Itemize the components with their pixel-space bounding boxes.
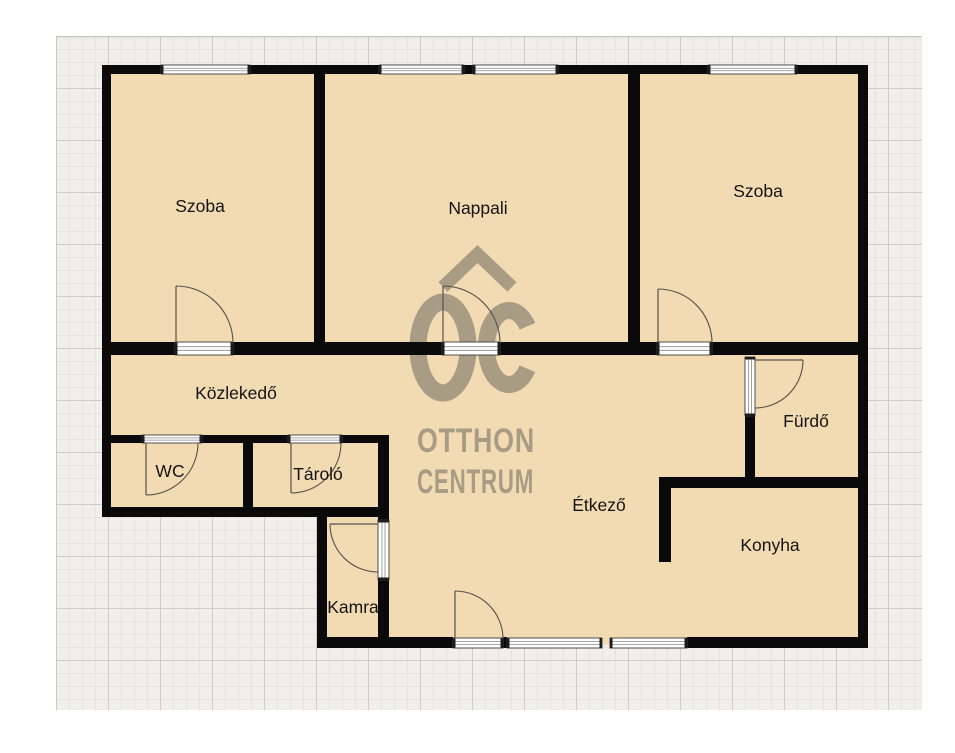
door-sill-jamb: [200, 435, 203, 443]
window-jamb: [462, 65, 465, 74]
window-jamb: [473, 65, 476, 74]
window-jamb: [507, 638, 510, 648]
window: [507, 638, 602, 648]
door-sill-jamb: [657, 342, 660, 355]
window-jamb: [556, 65, 559, 74]
floorplan-svg: OTTHONCENTRUMSzobaNappaliSzobaKözlekedőW…: [0, 0, 955, 753]
door-sill-jamb: [745, 414, 755, 417]
window-jamb: [685, 638, 688, 648]
wall: [250, 65, 379, 74]
door-sill: [288, 435, 342, 443]
door-sill: [442, 342, 500, 355]
window-jamb: [610, 638, 613, 648]
window: [473, 65, 558, 74]
door-sill-jamb: [498, 342, 501, 355]
room-label: Étkező: [572, 495, 626, 515]
door-sill: [745, 357, 755, 416]
window-jamb: [248, 65, 251, 74]
wall: [503, 637, 507, 648]
door-sill-jamb: [442, 342, 445, 355]
wall: [317, 637, 453, 648]
wall: [558, 65, 708, 74]
window-jamb: [379, 65, 382, 74]
wall: [745, 416, 755, 477]
window-jamb: [708, 65, 711, 74]
door-sill-jamb: [453, 638, 456, 648]
room-label: Szoba: [733, 181, 783, 201]
wall: [687, 637, 868, 648]
door-sill: [142, 435, 202, 443]
door-sill: [378, 520, 389, 580]
wall: [314, 74, 325, 342]
wall: [464, 65, 473, 74]
window-jamb: [600, 638, 603, 648]
door-sill-jamb: [175, 342, 178, 355]
door-sill-jamb: [745, 357, 755, 360]
watermark-text-line2: CENTRUM: [417, 463, 534, 501]
room-label: Konyha: [740, 535, 800, 555]
door-sill-jamb: [142, 435, 145, 443]
wall: [202, 435, 288, 443]
door-sill-jamb: [378, 520, 389, 523]
wall: [317, 507, 327, 648]
window: [610, 638, 687, 648]
door-sill-jamb: [378, 578, 389, 581]
wall: [233, 342, 442, 355]
door-sill: [175, 342, 233, 355]
wall: [243, 443, 253, 517]
wall: [111, 342, 175, 355]
floor-plan-page: OTTHONCENTRUMSzobaNappaliSzobaKözlekedőW…: [0, 0, 955, 753]
door-sill-jamb: [231, 342, 234, 355]
door-sill-jamb: [340, 435, 343, 443]
room-label: Nappali: [448, 198, 507, 218]
window: [708, 65, 797, 74]
wall: [378, 435, 389, 520]
room-label: Fürdő: [783, 411, 829, 431]
wall: [712, 342, 858, 355]
room-label: Közlekedő: [195, 383, 277, 403]
wall: [102, 507, 389, 517]
watermark-text-line1: OTTHON: [417, 422, 535, 460]
wall: [659, 488, 671, 562]
door-sill-jamb: [288, 435, 291, 443]
door-sill-jamb: [501, 638, 504, 648]
wall: [500, 342, 657, 355]
room-label: WC: [155, 461, 184, 481]
room-label: Szoba: [175, 196, 225, 216]
window: [379, 65, 464, 74]
door-sill-jamb: [710, 342, 713, 355]
wall: [797, 65, 868, 74]
door-sill: [657, 342, 712, 355]
window-jamb: [161, 65, 164, 74]
wall: [659, 477, 868, 488]
wall: [102, 65, 111, 517]
room-label: Tároló: [293, 464, 343, 484]
window-jamb: [795, 65, 798, 74]
wall: [628, 74, 640, 342]
window: [161, 65, 250, 74]
wall: [858, 65, 868, 648]
door-sill: [453, 638, 503, 648]
wall: [102, 435, 142, 443]
room-label: Kamra: [327, 597, 379, 617]
